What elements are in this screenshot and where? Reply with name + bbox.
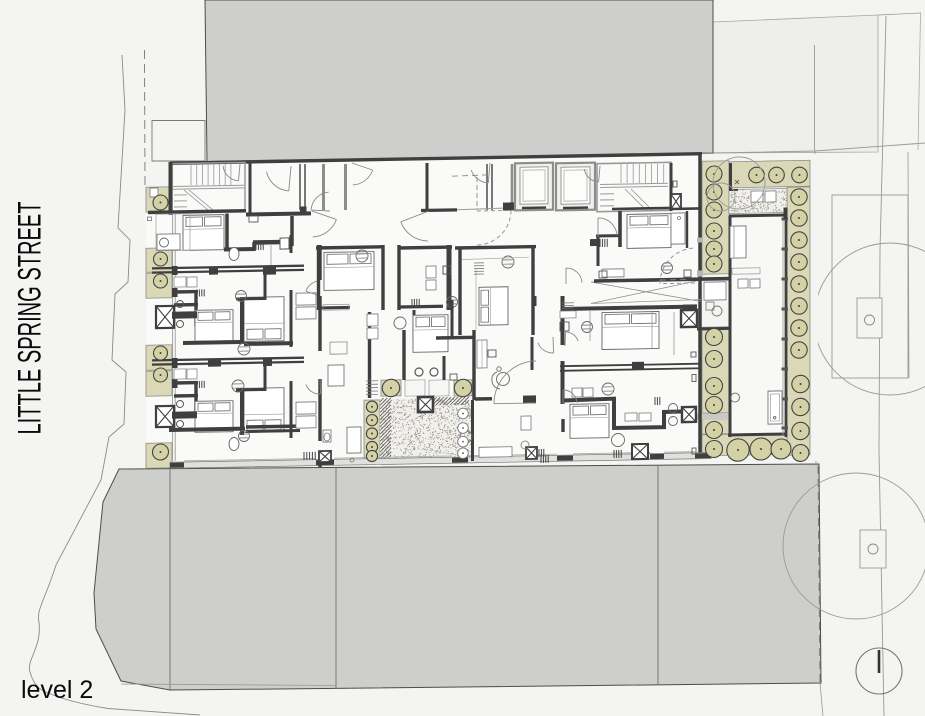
svg-text:level 2: level 2 [21, 676, 93, 704]
svg-text:LITTLE SPRING STREET: LITTLE SPRING STREET [12, 201, 48, 434]
